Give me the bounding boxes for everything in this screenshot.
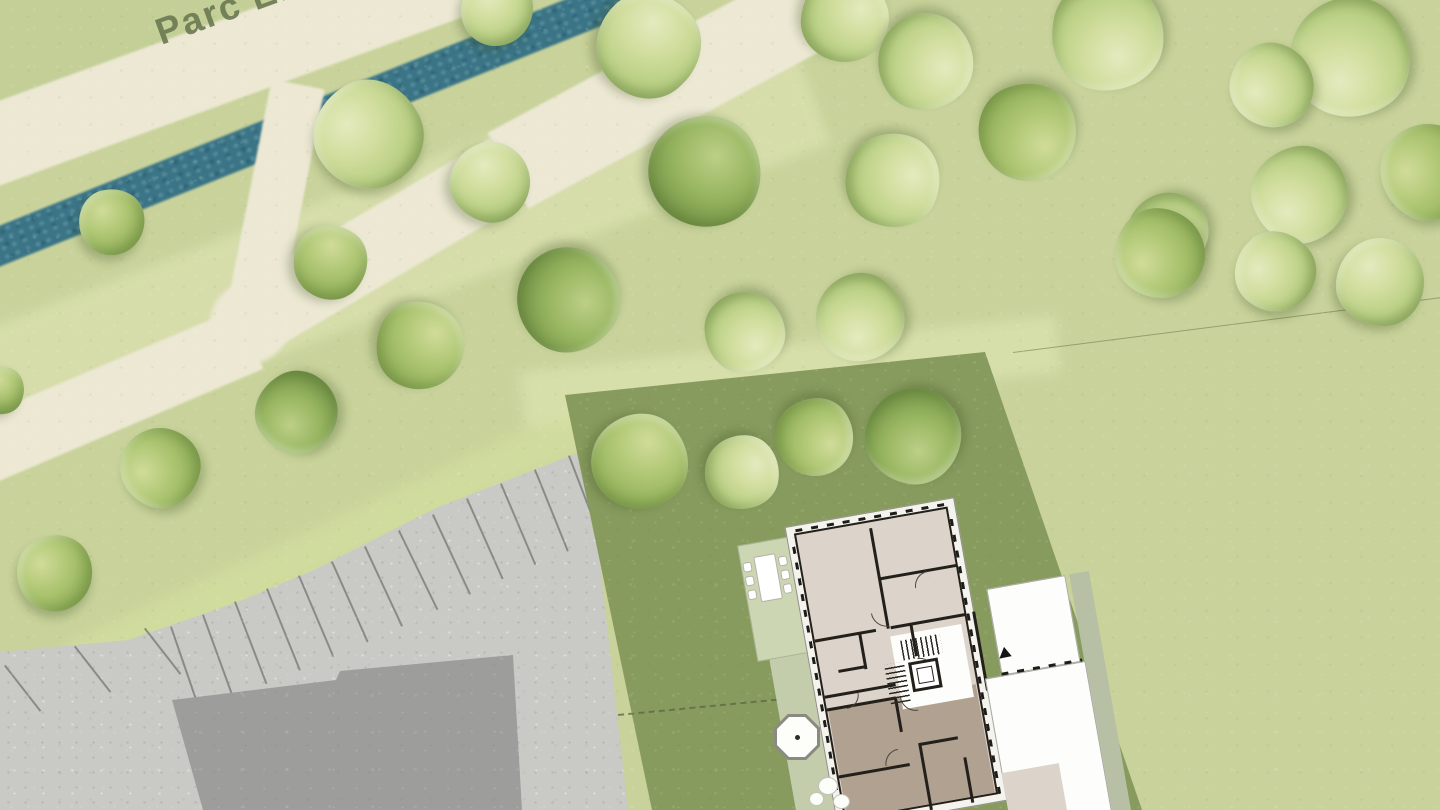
site-plan-canvas: Parc Em bbox=[0, 0, 1440, 810]
garden-stone bbox=[809, 792, 824, 806]
parasol-pole-dot bbox=[795, 735, 800, 740]
garden-stone bbox=[818, 777, 838, 795]
garden-props bbox=[0, 0, 1440, 810]
garden-stone bbox=[833, 794, 850, 809]
